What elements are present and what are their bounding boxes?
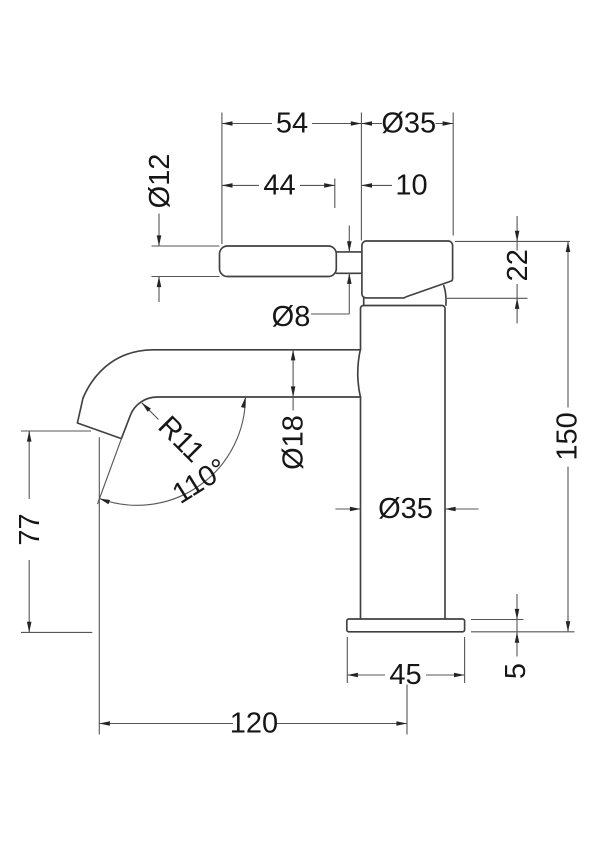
svg-text:R11: R11 xyxy=(152,410,211,469)
svg-text:Ø8: Ø8 xyxy=(272,301,311,333)
svg-text:22: 22 xyxy=(502,249,534,281)
svg-text:44: 44 xyxy=(263,169,295,201)
svg-text:120: 120 xyxy=(230,708,278,740)
svg-text:Ø18: Ø18 xyxy=(278,415,310,470)
svg-text:77: 77 xyxy=(14,513,46,545)
svg-text:5: 5 xyxy=(500,663,532,679)
svg-text:Ø35: Ø35 xyxy=(381,108,436,140)
svg-text:54: 54 xyxy=(276,108,308,140)
svg-text:10: 10 xyxy=(395,169,427,201)
svg-text:Ø35: Ø35 xyxy=(378,493,433,525)
svg-text:150: 150 xyxy=(552,412,584,460)
svg-text:45: 45 xyxy=(389,659,421,691)
svg-text:110°: 110° xyxy=(167,453,233,511)
svg-text:Ø12: Ø12 xyxy=(144,154,176,209)
